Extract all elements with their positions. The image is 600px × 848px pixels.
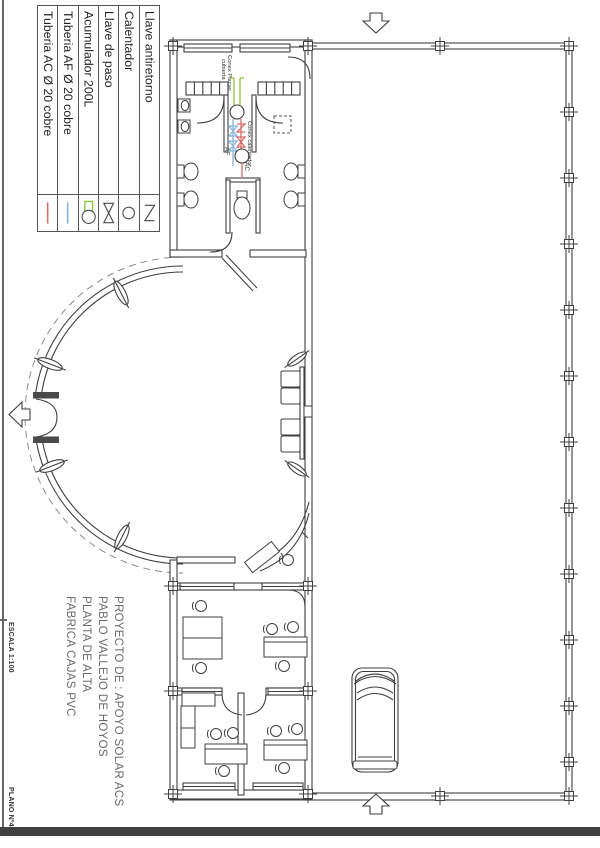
side-table [304,406,312,417]
chair [193,601,207,612]
desk [205,744,247,764]
accessible-toilet [234,191,250,219]
project-title-block: PROYECTO DE : APOYO SOLAR ACS PABLO VALL… [62,596,126,828]
legend-table: Tuberia AC Ø 20 cobre Tuberia AF Ø 20 co… [37,5,160,232]
desk [264,740,307,760]
roof-overhang-dashed-arc [25,257,183,573]
column-marker [431,787,449,805]
legend-label: Llave antiretorno [140,6,159,194]
reception-desk [245,541,280,572]
desk [183,617,222,638]
stall-band [186,82,228,95]
column-marker [560,565,578,583]
column-marker [431,37,449,55]
chair [193,663,207,674]
project-title-line: PABLO VALLEJO DE HOYOS [94,596,110,828]
bench-seat [281,419,300,435]
facade-column [109,276,132,310]
rotunda-inner-wall [40,272,183,558]
chair [208,729,222,740]
heater-connection-label: Conex calentador [246,121,252,167]
toilet [177,163,198,180]
project-title-line: PLANTA DE ALTA [78,596,94,828]
bench-seat [281,436,300,452]
car [352,668,398,772]
chair [276,661,290,672]
scale-label: ESCALA 1:100 [7,622,14,673]
legend-row-shutoff-valve: Llave de paso [99,6,119,231]
chair [280,555,294,566]
sofa [182,693,215,706]
project-title-line: FABRICA CAJAS PVC [62,596,78,828]
sofa [181,706,195,728]
chair [264,624,278,635]
desk [264,637,307,657]
sofa [181,728,195,748]
drawing-sheet: Conex Placas cubierta Conex calentador A… [0,0,600,848]
column-marker [164,682,182,700]
column-marker [560,433,578,451]
cold-water-pipe-icon [58,194,77,231]
toilet [284,191,305,208]
chair [216,766,230,777]
check-valve-icon [140,194,159,231]
rotunda [25,257,183,573]
heater-icon [119,194,138,231]
column-marker [560,697,578,715]
rear-bumper [353,761,397,769]
legend-row-check-valve: Llave antiretorno [140,6,159,231]
column-marker [560,169,578,187]
down-arrow-icon [363,13,389,33]
chair [268,726,282,737]
column-marker [299,577,317,595]
toilet [284,163,305,180]
column-marker [560,103,578,121]
project-title-line: PROYECTO DE : APOYO SOLAR ACS [110,596,126,828]
column-marker [560,37,578,55]
column-marker [299,682,317,700]
bench-seat [281,388,300,404]
cold-water-label: AF [223,147,230,155]
accumulator-icon [79,194,98,231]
column-marker [164,577,182,595]
legend-label: Acumulador 200L [79,6,98,194]
facade-column [110,520,133,554]
column-marker [560,499,578,517]
column-marker [560,631,578,649]
entrance-wall-stub [33,437,59,444]
accumulator-symbol [230,105,244,119]
legend-row-heater: Calentador [119,6,139,231]
shutoff-valve-icon [99,194,118,231]
chair [225,728,239,739]
plan-number-label: PLANO Nº4 [7,787,14,827]
entrance-wall-stub [33,392,59,399]
column-marker [560,235,578,253]
desk [183,638,222,659]
legend-row-accumulator: Acumulador 200L [79,6,99,231]
legend-label: Llave de paso [99,6,118,194]
column-marker [560,301,578,319]
hot-water-pipe-icon [38,194,57,231]
column-marker [560,367,578,385]
facade-column [33,354,68,375]
stall-band [258,82,300,95]
chair [285,622,299,633]
legend-row-cold-water-pipe: Tuberia AF Ø 20 cobre [58,6,78,231]
column-marker [560,787,578,805]
hot-water-label: AC [243,162,250,171]
legend-label: Tuberia AC Ø 20 cobre [38,6,57,194]
legend-label: Calentador [119,6,138,194]
legend-label: Tuberia AF Ø 20 cobre [58,6,77,194]
bench-seat [281,371,300,387]
column-marker [560,753,578,771]
toilet [177,191,198,208]
chair [276,763,290,774]
legend-row-hot-water-pipe: Tuberia AC Ø 20 cobre [38,6,58,231]
chair [289,724,303,735]
roof-connection-label2: cubierta [220,59,226,80]
left-arrow-icon [9,402,30,427]
equipment-reserved-area [274,116,291,133]
